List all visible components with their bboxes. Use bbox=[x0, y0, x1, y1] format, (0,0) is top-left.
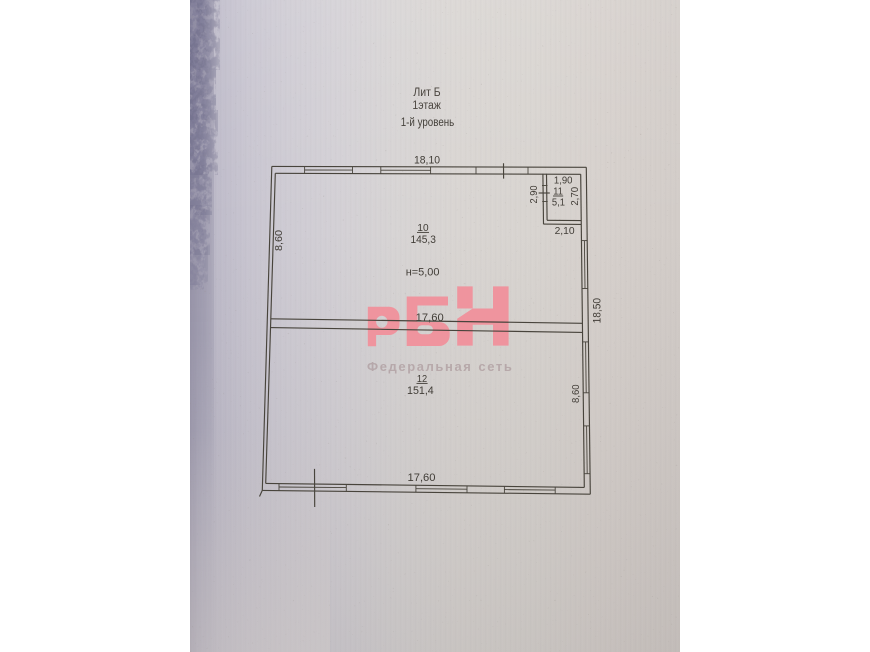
svg-text:8,60: 8,60 bbox=[571, 384, 582, 403]
svg-text:2,10: 2,10 bbox=[555, 226, 575, 237]
svg-text:18,10: 18,10 bbox=[414, 155, 440, 167]
svg-text:17,60: 17,60 bbox=[408, 472, 436, 484]
svg-text:17,60: 17,60 bbox=[416, 312, 444, 324]
svg-text:2,90: 2,90 bbox=[529, 185, 540, 203]
svg-text:145,3: 145,3 bbox=[411, 234, 436, 246]
svg-text:18,50: 18,50 bbox=[592, 298, 604, 323]
svg-text:8,60: 8,60 bbox=[274, 230, 285, 251]
svg-text:н=5,00: н=5,00 bbox=[406, 266, 440, 278]
svg-text:151,4: 151,4 bbox=[407, 385, 434, 397]
svg-text:1,90: 1,90 bbox=[554, 176, 573, 187]
svg-text:2,70: 2,70 bbox=[570, 187, 581, 206]
svg-text:5,1: 5,1 bbox=[552, 198, 566, 209]
